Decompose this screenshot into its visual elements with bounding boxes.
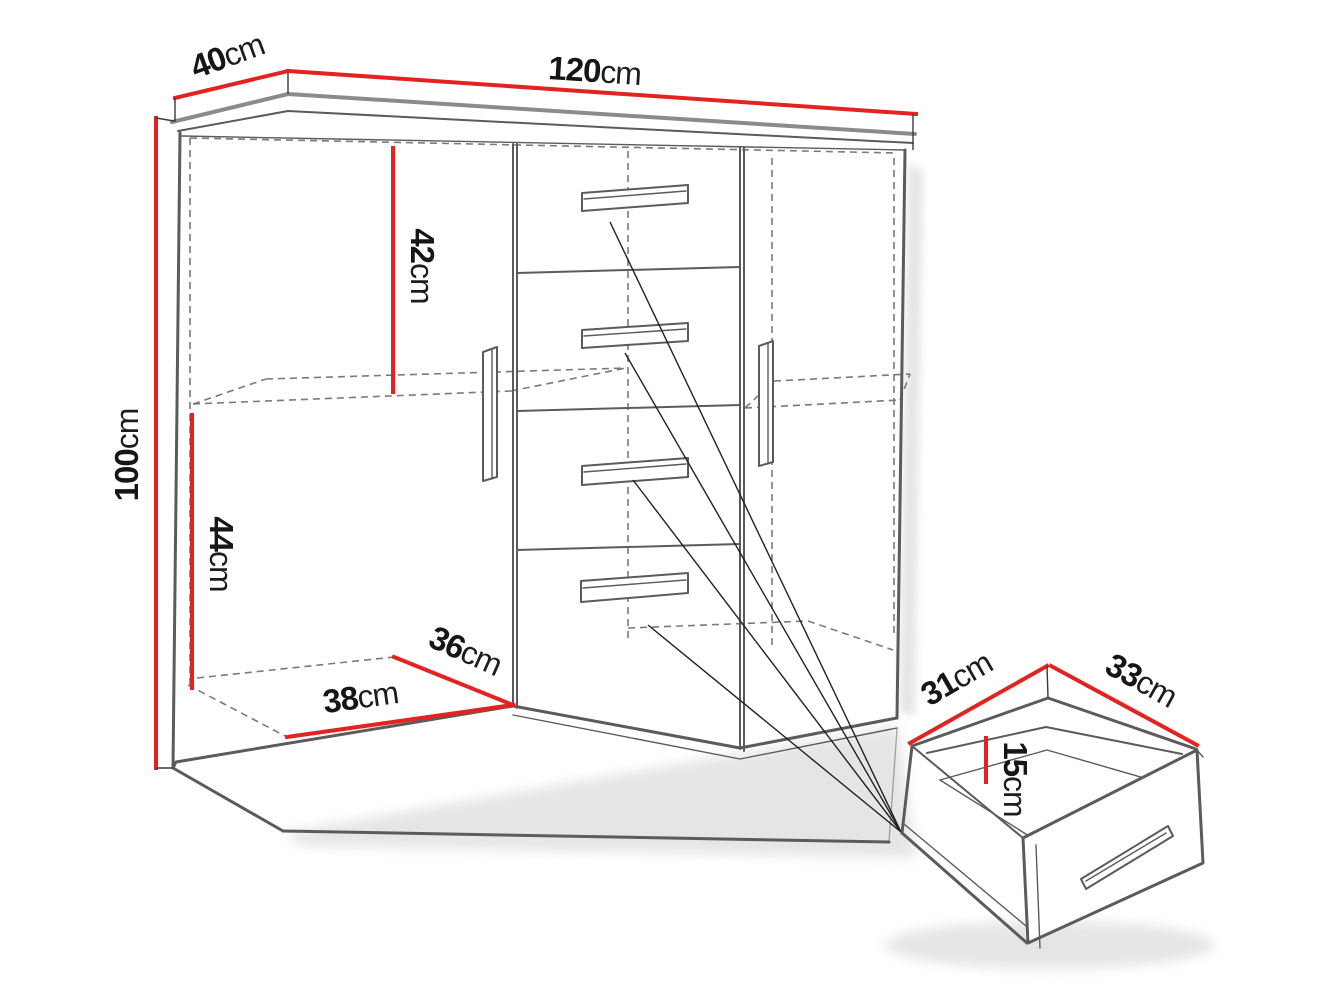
left-door-handle (483, 347, 497, 481)
right-door (740, 147, 773, 751)
left-door (483, 144, 517, 708)
dim-lower-section: 44cm (192, 415, 240, 688)
dim-label-top-width: 120cm (547, 49, 642, 92)
dim-drawer-width: 33cm (1051, 645, 1197, 745)
left-door-right-edge (513, 144, 517, 708)
dim-line-top-depth (175, 71, 288, 98)
dim-label-drawer-width: 33cm (1100, 645, 1184, 714)
furniture-dimension-diagram: 40cm 120cm 100cm 42cm 44cm 36cm 38cm (0, 0, 1334, 1000)
drawer-left-wall-board-line (904, 824, 1026, 926)
dim-drawer-height: 15cm (986, 738, 1034, 817)
diagram-canvas: 40cm 120cm 100cm 42cm 44cm 36cm 38cm (0, 0, 1334, 1000)
dim-label-interior-width: 38cm (321, 673, 401, 720)
cabinet-drawing (172, 94, 915, 842)
dim-drawer-depth: 31cm (910, 643, 1048, 743)
interior-ceiling-back-edge (190, 138, 897, 153)
leader-lines (610, 222, 901, 832)
left-shelf-dashed (193, 368, 626, 404)
dim-label-drawer-height: 15cm (997, 741, 1034, 816)
dim-height: 100cm (108, 118, 174, 768)
dim-line-interior-width (287, 705, 513, 737)
top-panel-upper-edge (172, 94, 915, 134)
cabinet-front (173, 133, 905, 768)
right-floor-dashed (628, 621, 893, 650)
drawer-front-face (1023, 750, 1203, 943)
right-door-left-edge (740, 147, 744, 751)
drawer-handle-1 (582, 185, 688, 211)
dim-upper-section: 42cm (393, 148, 441, 392)
cabinet-left-edge (173, 133, 180, 768)
dim-label-lower-section: 44cm (203, 516, 240, 591)
right-door-handle (759, 341, 773, 466)
cabinet-front-top-edge (182, 136, 905, 150)
drawer-handle-3 (582, 458, 688, 485)
dim-label-upper-section: 42cm (404, 228, 441, 303)
drawer-handle-4 (581, 573, 688, 602)
drawer-handle-2 (582, 323, 688, 348)
dimension-lines: 40cm 120cm 100cm 42cm 44cm 36cm 38cm (108, 25, 1197, 817)
interior-dashed-lines (188, 138, 910, 737)
drawer-floor-back-edges (940, 750, 1158, 782)
leader-line-1 (610, 222, 901, 832)
door-handle-icon (483, 347, 497, 481)
dim-interior-width: 38cm (287, 673, 513, 737)
cabinet-top-panel (172, 94, 915, 143)
dim-label-height: 100cm (108, 409, 145, 502)
dim-interior-depth: 36cm (394, 618, 513, 705)
dim-ticks-height (156, 118, 174, 768)
detached-drawer-drawing (902, 698, 1203, 948)
plinth-left-edge (173, 768, 283, 831)
dim-label-top-depth: 40cm (185, 25, 268, 86)
dim-ticks-drawer-depth (1047, 666, 1048, 697)
door-handle-icon (759, 341, 773, 466)
